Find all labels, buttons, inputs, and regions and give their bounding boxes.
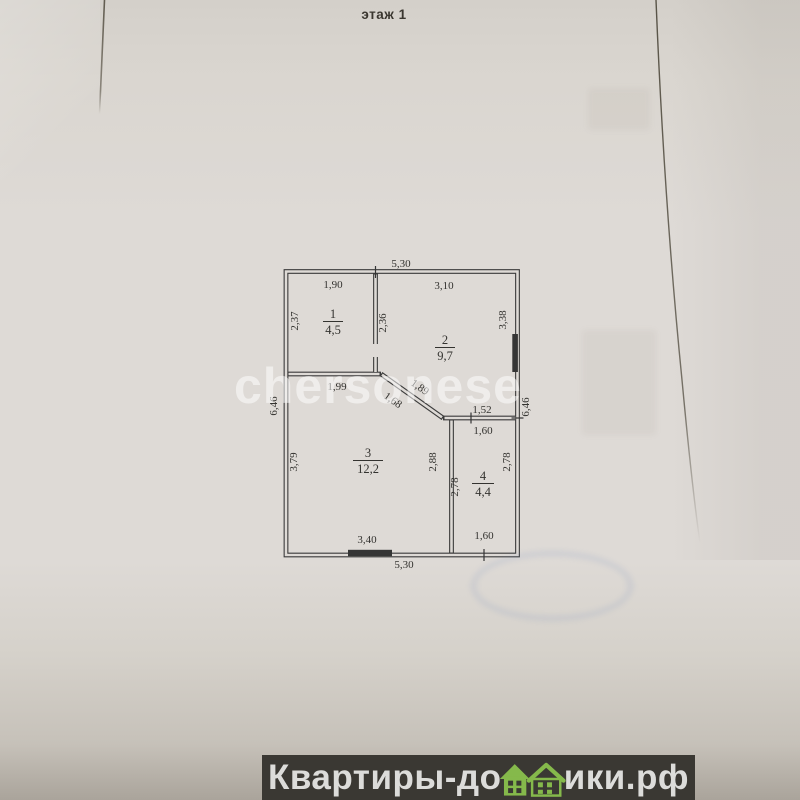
room3-area: 12,2 [357, 462, 379, 476]
dim-top-total: 5,30 [391, 258, 411, 270]
dim-bottom-room3: 3,40 [357, 534, 377, 546]
brand-text-left: Квартиры-до [268, 760, 501, 795]
dim-top-room2: 3,10 [434, 280, 454, 292]
room4-label: 4 4,4 [472, 469, 494, 499]
house-icon-left [500, 764, 530, 795]
room1-area: 4,5 [325, 323, 341, 337]
room3-label: 3 12,2 [353, 446, 383, 476]
door-opening [370, 344, 381, 357]
page-right-edge [656, 0, 700, 543]
house-icon-right [529, 764, 564, 795]
house-icons [499, 758, 565, 800]
dim-room2-right: 3,38 [497, 310, 509, 330]
dim-room4-right: 2,78 [501, 452, 513, 472]
dim-room4-top: 1,60 [473, 425, 493, 437]
brand-logo: Квартиры-до ики.рф [262, 755, 695, 800]
dim-room3-left: 3,79 [288, 452, 300, 472]
dim-room3-right: 2,88 [427, 452, 439, 472]
stamp-ghost [470, 550, 634, 622]
brand-text-right: ики.рф [564, 760, 689, 795]
room3-number: 3 [365, 446, 371, 460]
room1-label: 1 4,5 [323, 307, 343, 337]
page-left-crease [100, 0, 105, 114]
window-bottom-wall [348, 550, 392, 556]
room2-number: 2 [442, 333, 448, 347]
dim-room1-right: 2,36 [377, 313, 389, 333]
dim-room1-left: 2,37 [289, 311, 301, 331]
dim-bottom-room4: 1,60 [474, 530, 494, 542]
document-photo: этаж 1 [0, 0, 800, 800]
room4-number: 4 [480, 469, 487, 483]
dim-top-room1: 1,90 [323, 279, 343, 291]
room4-area: 4,4 [475, 485, 491, 499]
dim-bottom-total: 5,30 [394, 559, 414, 571]
watermark: chersonese [234, 357, 522, 415]
room1-number: 1 [330, 307, 336, 321]
dim-room4-left: 2,78 [449, 477, 461, 497]
